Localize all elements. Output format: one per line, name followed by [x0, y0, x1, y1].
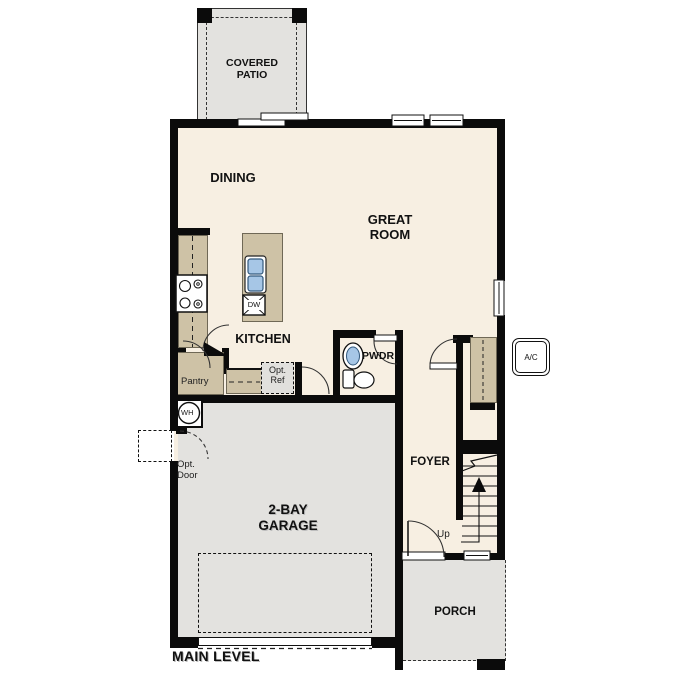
powder-wall-right — [395, 330, 403, 400]
garage-bottom-wall-right — [372, 637, 403, 648]
stair-landing-wall — [456, 440, 505, 454]
hall-wall-stub — [295, 362, 302, 395]
ac-unit-label: A/C — [515, 341, 547, 373]
plan-title: MAIN LEVEL — [172, 648, 332, 665]
exterior-wall-left-upper — [170, 119, 178, 431]
exterior-wall-left-lower — [170, 461, 178, 648]
powder-wall-left — [333, 330, 340, 397]
front-wall — [395, 553, 505, 560]
room-label-kitchen: KITCHEN — [213, 332, 313, 347]
ac-unit: A/C — [512, 338, 550, 376]
feature-label-water-heater: WH — [181, 409, 194, 418]
room-label-great-room: GREAT ROOM — [340, 212, 440, 243]
pantry-floor — [178, 352, 224, 395]
exterior-wall-right-upper — [497, 119, 505, 281]
coat-closet — [470, 337, 497, 403]
powder-wall-top — [333, 330, 376, 338]
room-label-porch: PORCH — [415, 606, 495, 620]
feature-label-opt-door: Opt. Door — [177, 460, 198, 482]
room-label-powder: PWDR — [362, 350, 402, 362]
garage-door — [198, 637, 372, 646]
feature-label-dishwasher: DW — [245, 300, 263, 310]
garage-top-wall — [170, 395, 403, 403]
garage-door-setback — [198, 553, 372, 633]
patio-post-left — [197, 8, 212, 23]
room-label-foyer: FOYER — [395, 456, 465, 470]
exterior-wall-top — [170, 119, 505, 128]
foyer-closet-wall — [456, 341, 463, 445]
closet-bottom-wall-stub — [470, 403, 495, 410]
room-label-garage: 2-BAY GARAGE — [238, 502, 338, 534]
garage-foyer-wall — [395, 395, 403, 670]
floor-plan: COVERED PATIO DINING GREAT ROOM KITCHEN … — [0, 0, 687, 687]
feature-label-up: Up — [437, 529, 450, 541]
exterior-wall-right-lower — [497, 315, 505, 560]
kitchen-counter — [178, 235, 208, 348]
room-label-dining: DINING — [193, 170, 273, 185]
feature-label-pantry: Pantry — [181, 377, 208, 388]
water-heater-wall-stub — [176, 428, 187, 434]
porch-post — [477, 659, 505, 670]
patio-post-right — [292, 8, 307, 23]
room-label-covered-patio: COVERED PATIO — [202, 57, 302, 82]
garage-bottom-wall-left — [170, 637, 198, 648]
kitchen-counter-lower — [226, 368, 262, 394]
feature-label-opt-ref: Opt. Ref — [261, 365, 294, 386]
kitchen-counter-top-wall — [172, 228, 210, 235]
optional-door-box — [138, 430, 172, 462]
